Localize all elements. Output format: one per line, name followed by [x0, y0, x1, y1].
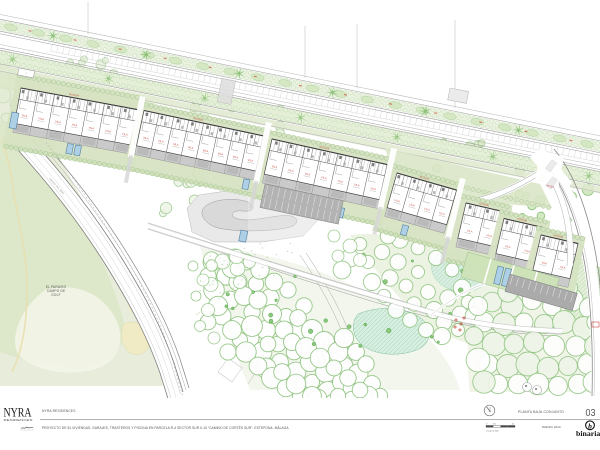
- svg-text:03: 03: [586, 407, 596, 419]
- svg-text:RESIDENCES: RESIDENCES: [4, 418, 33, 422]
- svg-text:5m: 5m: [493, 423, 496, 425]
- svg-text:NYRA RESIDENCES: NYRA RESIDENCES: [42, 409, 76, 413]
- svg-text:binaria: binaria: [576, 429, 600, 438]
- svg-text:GOLF: GOLF: [51, 293, 60, 297]
- svg-text:escala 1:500: escala 1:500: [486, 430, 499, 432]
- svg-text:PROYECTO DE 81 VIVIENDAS, GARA: PROYECTO DE 81 VIVIENDAS, GARAJES, TRAST…: [42, 425, 289, 430]
- svg-text:PLANTA BAJA CONJUNTO: PLANTA BAJA CONJUNTO: [518, 410, 564, 414]
- svg-text:MARZO 2020: MARZO 2020: [542, 425, 561, 429]
